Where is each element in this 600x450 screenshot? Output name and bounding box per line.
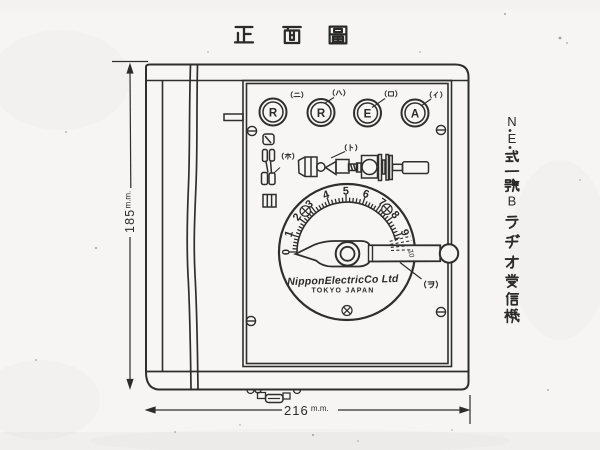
svg-text:B: B xyxy=(508,194,517,209)
svg-text:E: E xyxy=(508,131,517,146)
svg-text:0: 0 xyxy=(281,249,293,255)
svg-text:R: R xyxy=(269,108,278,120)
svg-text:E: E xyxy=(364,109,372,121)
svg-text:N: N xyxy=(507,114,516,129)
svg-text:R: R xyxy=(317,108,326,120)
svg-text:5: 5 xyxy=(343,185,349,197)
svg-text:TOKYO JAPAN: TOKYO JAPAN xyxy=(311,288,374,295)
svg-text:A: A xyxy=(411,109,419,121)
